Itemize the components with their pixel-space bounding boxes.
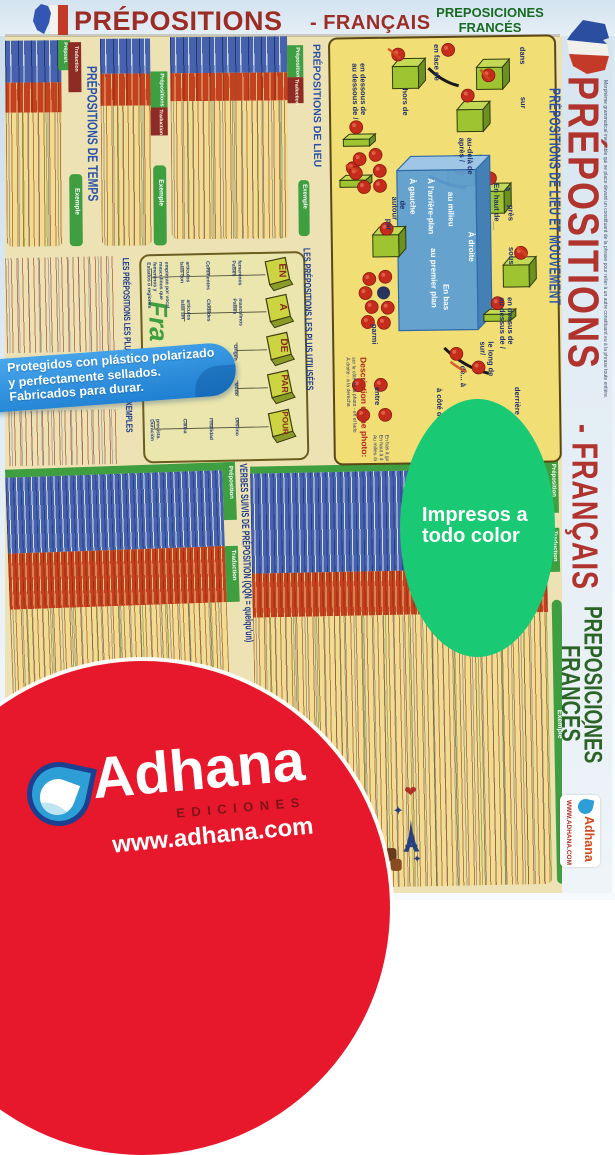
svg-text:En haut de__: En haut de__ xyxy=(492,183,502,231)
svg-text:Description d'une photo:: Description d'une photo: xyxy=(358,357,369,458)
svg-text:au milieu: au milieu xyxy=(446,192,455,227)
svg-text:hors de: hors de xyxy=(401,88,410,115)
svg-text:sous: sous xyxy=(507,247,516,265)
svg-text:près: près xyxy=(506,205,515,221)
svg-text:après /: après / xyxy=(457,138,466,163)
svg-text:de: de xyxy=(398,200,407,209)
svg-text:autour: autour xyxy=(390,197,399,221)
svg-text:En bas à gauche - abajo a la i: En bas à gauche - abajo a la izquierda xyxy=(384,435,391,462)
svg-text:À gauche: À gauche xyxy=(408,178,418,215)
svg-text:au premier plan: au premier plan xyxy=(429,248,439,308)
svg-text:En bas: En bas xyxy=(441,284,450,311)
svg-text:sur le côté de la photo - en e: sur le côté de la photo - en el lado xyxy=(350,357,357,433)
svg-text:sur/: sur/ xyxy=(478,341,487,356)
svg-text:derrière: derrière xyxy=(513,387,522,415)
svg-text:en dessus de: en dessus de xyxy=(506,297,516,345)
svg-text:le long de: le long de xyxy=(486,341,495,376)
svg-text:dans: dans xyxy=(518,47,527,65)
svg-text:au-delà de: au-delà de xyxy=(465,138,475,175)
svg-text:entre: entre xyxy=(373,387,382,405)
svg-text:À l'arrière-plan: À l'arrière-plan xyxy=(426,178,436,234)
svg-text:À droite: À droite xyxy=(467,232,476,263)
svg-text:en dessous de: en dessous de xyxy=(358,63,368,115)
svg-text:en face de: en face de xyxy=(432,44,442,81)
svg-text:parmi: parmi xyxy=(370,324,379,345)
svg-text:sur: sur xyxy=(519,97,528,109)
svg-text:Au milieu de la photo - en el: Au milieu de la photo - en el medio xyxy=(372,435,379,462)
svg-text:par: par xyxy=(384,219,393,231)
